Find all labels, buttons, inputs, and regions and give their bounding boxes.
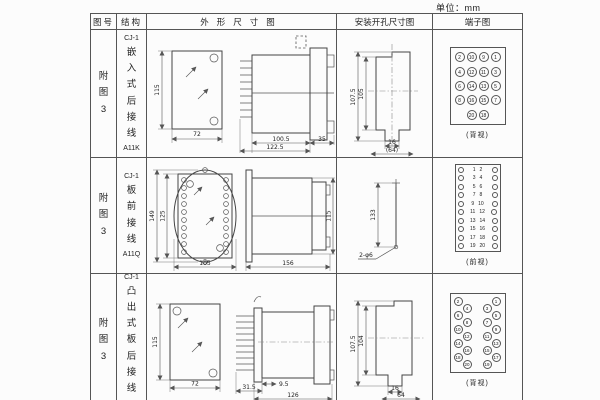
dim-label: 156 [282, 260, 294, 267]
terminal-pin: 15 [479, 95, 489, 105]
model-label: CJ-1 [124, 173, 139, 180]
front-view: 115 72 [154, 51, 222, 143]
terminal-pin: 5 [492, 311, 501, 320]
install-cell: 107.5 104 16 64 [337, 274, 433, 400]
terminal-pin: 11 [479, 67, 489, 77]
terminal-number: 17 [470, 235, 476, 241]
terminal-pin: 7 [483, 318, 492, 327]
terminal-pin: 10 [467, 52, 477, 62]
terminal-number: 1 [473, 167, 476, 173]
terminal-pin: 20 [467, 110, 477, 120]
view-label: (背视) [466, 130, 489, 140]
dim-label: 115 [152, 337, 159, 349]
terminal-studs [181, 167, 228, 264]
terminal-pin: 8 [463, 318, 472, 327]
install-cell: 107.5 105 16 (64) [337, 30, 433, 158]
model-label: CJ-1 [124, 35, 139, 42]
terminal-pin [492, 243, 498, 249]
fig-number: 附图3 [98, 191, 109, 239]
col-header-install: 安装开孔尺寸图 [337, 14, 433, 30]
terminal-pin: 18 [479, 110, 489, 120]
dim-label: 149 [149, 210, 156, 222]
terminal-pin: 10 [454, 325, 463, 334]
terminal-pin: 14 [467, 81, 477, 91]
terminal-pin [458, 235, 464, 241]
terminal-box: 210914121136141358161572018 [450, 47, 506, 125]
terminal-box: 2468101214161820135791113151719 [450, 293, 506, 373]
terminal-pin: 18 [454, 353, 463, 362]
dim-label: 16 [391, 385, 399, 392]
terminal-diagram-front: 1234567891011121314151617181920 [455, 164, 501, 252]
outline-cell: 115 72 [147, 274, 337, 400]
terminal-number: 12 [479, 209, 485, 215]
outline-drawing-projecting: 115 72 [148, 278, 336, 400]
terminal-pin: 20 [463, 360, 472, 369]
install-drawing-projecting: 107.5 104 16 64 [338, 278, 432, 400]
terminal-cell: 210914121136141358161572018 (背视) [433, 30, 523, 158]
col-header-fig: 图号 [91, 14, 117, 30]
dim-label: 16 [388, 139, 396, 146]
col-header-terminal: 端子图 [433, 14, 523, 30]
terminal-pin [492, 167, 498, 173]
terminal-pin: 13 [492, 339, 501, 348]
terminal-pin: 17 [492, 353, 501, 362]
struct-cell: CJ-1 嵌入式后接线 A11K [117, 30, 147, 158]
terminal-pin [491, 209, 497, 215]
code-label: A11K [123, 145, 140, 152]
struct-cell: CJ-1 板前接线 A11Q [117, 158, 147, 274]
terminal-number: 14 [480, 218, 486, 224]
terminal-pin [458, 175, 464, 181]
side-view: 9.5 31.5 126 [236, 297, 334, 400]
terminal-pin: 14 [454, 339, 463, 348]
table-row: 附图3 CJ-1 凸出式板后接线 A11H [91, 274, 523, 400]
install-cell: 133 2-φ6 [337, 158, 433, 274]
terminal-pin: 6 [454, 311, 463, 320]
install-drawing-flush-mount: 107.5 105 16 (64) [338, 31, 432, 157]
terminal-pin: 19 [483, 360, 492, 369]
view-label: (前视) [466, 257, 489, 267]
terminal-pin [492, 218, 498, 224]
terminal-pin: 4 [463, 304, 472, 313]
terminal-pin: 5 [491, 81, 501, 91]
terminal-pin [458, 184, 464, 190]
mount-type-label: 嵌入式后接线 [126, 45, 137, 142]
terminal-pin [492, 175, 498, 181]
outline-drawing-flush-mount: 115 72 [148, 31, 336, 157]
dim-label: 64 [397, 392, 405, 399]
terminal-pin [458, 243, 464, 249]
fig-number: 附图3 [98, 69, 109, 117]
spec-table: 图号 结构 外形尺寸图 安装开孔尺寸图 端子图 附图3 CJ-1 嵌入式后接线 … [90, 13, 523, 400]
terminal-pin: 1 [492, 297, 501, 306]
terminal-diagram-rear: 210914121136141358161572018 [450, 47, 506, 125]
terminal-number: 11 [470, 209, 475, 215]
terminal-pin: 8 [455, 95, 465, 105]
terminal-number: 4 [480, 175, 483, 181]
dim-label: (64) [385, 147, 397, 154]
dim-label: 126 [287, 392, 299, 399]
terminal-pin: 7 [491, 95, 501, 105]
outline-cell: 149 125 105 [147, 158, 337, 274]
dim-label: 133 [370, 209, 377, 221]
terminal-number: 3 [473, 175, 476, 181]
dim-label: 122.5 [266, 144, 283, 151]
terminal-pin [492, 201, 498, 207]
terminal-pin: 16 [463, 346, 472, 355]
dim-label: 100.5 [272, 136, 289, 143]
terminal-pin: 2 [455, 52, 465, 62]
mount-type-label: 凸出式板后接线 [126, 284, 137, 397]
terminal-pin: 4 [455, 67, 465, 77]
front-view: 149 125 105 [149, 167, 236, 270]
struct-cell: CJ-1 凸出式板后接线 A11H [117, 274, 147, 400]
terminal-pin: 2 [454, 297, 463, 306]
terminal-number: 2 [480, 167, 483, 173]
terminal-pin [458, 201, 464, 207]
terminal-number: 8 [480, 192, 483, 198]
install-drawing-front-wired: 133 2-φ6 [338, 159, 432, 273]
dim-label: 105 [199, 260, 211, 267]
dim-label: 72 [191, 381, 199, 388]
dim-label: 9.5 [279, 381, 289, 388]
terminal-pin: 6 [455, 81, 465, 91]
terminal-number: 15 [470, 226, 476, 232]
mount-type-label: 板前接线 [126, 183, 137, 248]
dim-label: 105 [358, 88, 365, 100]
model-label: CJ-1 [124, 274, 139, 281]
terminal-pin [458, 209, 464, 215]
fig-cell: 附图3 [91, 30, 117, 158]
terminal-pin [458, 167, 464, 173]
dim-label: 35 [318, 136, 326, 143]
terminal-number: 6 [480, 184, 483, 190]
dim-label: 107.5 [350, 336, 357, 353]
terminal-pin: 13 [479, 81, 489, 91]
terminal-pin: 12 [463, 332, 472, 341]
dim-label: 115 [325, 210, 332, 222]
table-row: 附图3 CJ-1 嵌入式后接线 A11K [91, 30, 523, 158]
terminal-pin [458, 192, 464, 198]
terminal-cell: 1234567891011121314151617181920 (前视) [433, 158, 523, 274]
terminal-number: 20 [480, 243, 486, 249]
dim-label: 104 [358, 336, 365, 348]
terminal-pin: 3 [483, 304, 492, 313]
fig-cell: 附图3 [91, 274, 117, 400]
terminal-pin: 1 [491, 52, 501, 62]
terminal-pin [492, 235, 498, 241]
col-header-outline: 外形尺寸图 [147, 14, 337, 30]
terminal-box: 1234567891011121314151617181920 [455, 164, 501, 252]
terminal-number: 18 [480, 235, 486, 241]
terminal-pin: 16 [467, 95, 477, 105]
terminal-number: 7 [473, 192, 476, 198]
terminal-pin [458, 226, 464, 232]
view-label: (背视) [466, 378, 489, 388]
header-row: 图号 结构 外形尺寸图 安装开孔尺寸图 端子图 [91, 14, 523, 30]
terminal-cell: 2468101214161820135791113151719 (背视) [433, 274, 523, 400]
col-header-struct: 结构 [117, 14, 147, 30]
terminal-pin [492, 226, 498, 232]
terminal-pin [458, 218, 464, 224]
outline-cell: 115 72 [147, 30, 337, 158]
terminal-pin: 3 [491, 67, 501, 77]
terminal-pin [492, 184, 498, 190]
terminal-pin: 12 [467, 67, 477, 77]
terminal-number: 5 [473, 184, 476, 190]
outline-drawing-front-wired: 149 125 105 [148, 159, 336, 273]
terminal-number: 9 [471, 201, 474, 207]
fig-number: 附图3 [98, 316, 109, 364]
terminal-pin: 9 [492, 325, 501, 334]
table-row: 附图3 CJ-1 板前接线 A11Q [91, 158, 523, 274]
document-page: 单位：mm 图号 结构 外形尺寸图 安装开孔尺寸图 端子图 附图3 CJ-1 嵌… [0, 0, 600, 400]
terminal-pin: 11 [483, 332, 492, 341]
dim-label: 72 [193, 131, 201, 138]
terminal-number: 10 [478, 201, 484, 207]
fig-cell: 附图3 [91, 158, 117, 274]
side-view: 100.5 35 122.5 [240, 36, 334, 153]
side-view: 115 156 [246, 170, 335, 271]
dim-label: 125 [159, 210, 166, 222]
terminal-number: 19 [470, 243, 476, 249]
terminal-pin: 15 [483, 346, 492, 355]
terminal-pin [492, 192, 498, 198]
terminal-pin: 9 [479, 52, 489, 62]
dim-label: 107.5 [350, 88, 357, 105]
dim-label: 115 [154, 84, 161, 96]
terminal-number: 13 [470, 218, 476, 224]
terminal-number: 16 [480, 226, 486, 232]
hole-spec-label: 2-φ6 [359, 252, 373, 259]
code-label: A11Q [123, 251, 140, 258]
front-view: 115 72 [152, 304, 220, 392]
terminal-diagram-rear: 2468101214161820135791113151719 [450, 293, 506, 373]
